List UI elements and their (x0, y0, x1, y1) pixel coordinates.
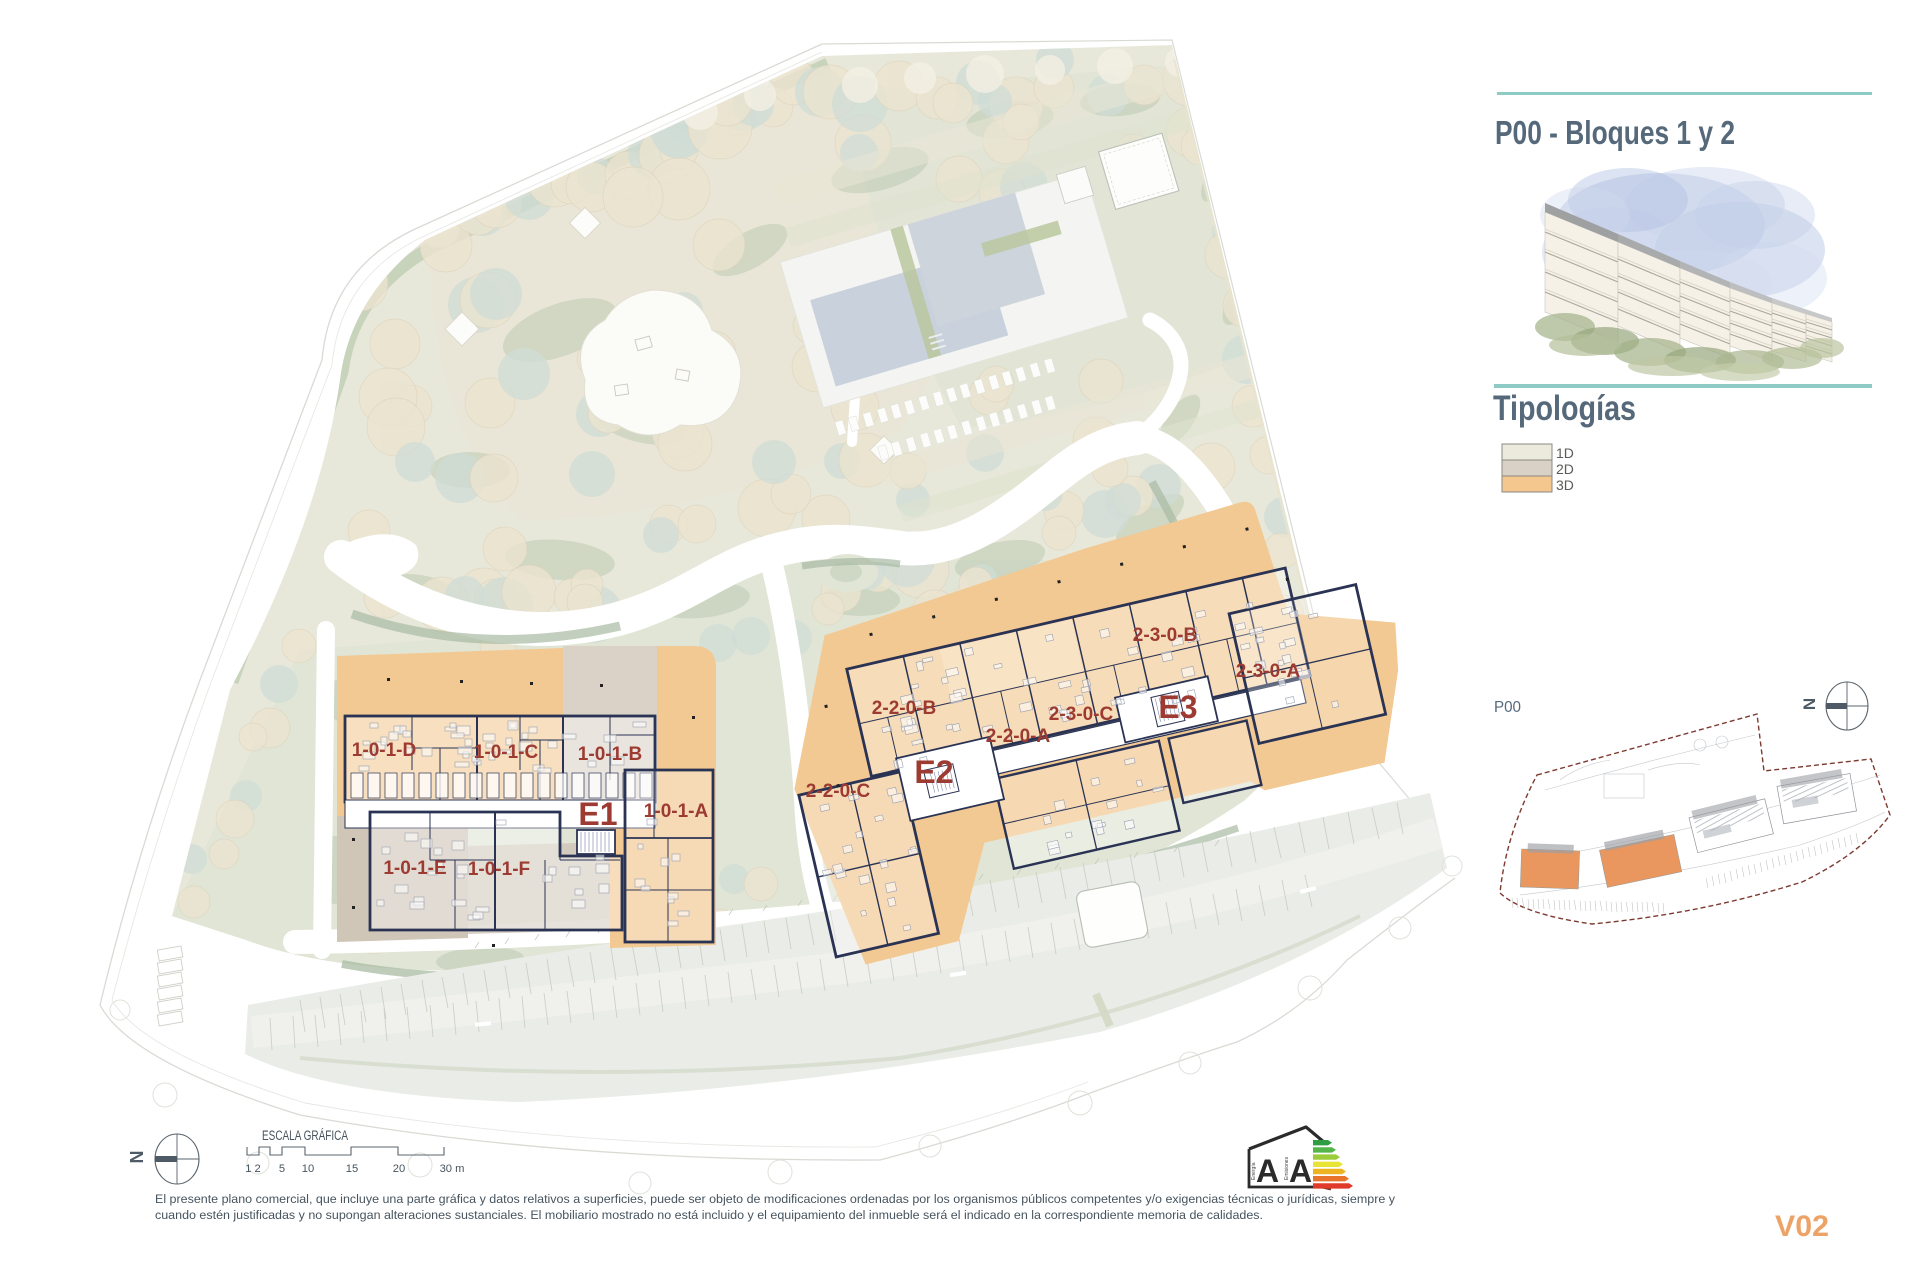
svg-text:5: 5 (279, 1163, 285, 1175)
svg-text:Tipologías: Tipologías (1493, 389, 1636, 428)
svg-text:N: N (1800, 698, 1819, 710)
svg-text:V02: V02 (1775, 1210, 1829, 1243)
svg-text:1-0-1-E: 1-0-1-E (383, 858, 446, 879)
svg-text:1D: 1D (1556, 445, 1574, 461)
svg-text:30 m: 30 m (440, 1163, 465, 1175)
svg-text:A: A (1289, 1153, 1312, 1189)
svg-text:P00: P00 (1494, 699, 1521, 716)
svg-text:P00 - Bloques 1 y 2: P00 - Bloques 1 y 2 (1495, 114, 1735, 151)
svg-text:20: 20 (393, 1163, 405, 1175)
svg-text:E2: E2 (914, 754, 953, 790)
svg-text:1-0-1-C: 1-0-1-C (474, 742, 539, 763)
svg-text:E1: E1 (578, 796, 617, 832)
svg-text:10: 10 (302, 1163, 314, 1175)
svg-text:cuando estén justificadas y no: cuando estén justificadas y no supongan … (155, 1208, 1263, 1222)
svg-text:15: 15 (346, 1163, 358, 1175)
svg-text:E3: E3 (1158, 689, 1197, 725)
svg-text:1 2: 1 2 (245, 1163, 261, 1175)
svg-text:2-2-0-B: 2-2-0-B (872, 698, 936, 719)
svg-text:2-2-0-C: 2-2-0-C (806, 781, 871, 802)
svg-text:2-3-0-C: 2-3-0-C (1049, 704, 1114, 725)
svg-text:El presente plano comercial, q: El presente plano comercial, que incluye… (155, 1192, 1396, 1206)
svg-text:1-0-1-F: 1-0-1-F (468, 859, 530, 880)
svg-text:2-3-0-A: 2-3-0-A (1236, 661, 1301, 682)
svg-text:1-0-1-D: 1-0-1-D (352, 740, 416, 761)
svg-text:3D: 3D (1556, 477, 1574, 493)
svg-text:N: N (127, 1151, 147, 1164)
svg-text:2-3-0-B: 2-3-0-B (1133, 625, 1197, 646)
svg-text:ESCALA GRÁFICA: ESCALA GRÁFICA (262, 1128, 348, 1143)
svg-text:1-0-1-B: 1-0-1-B (578, 744, 642, 765)
svg-text:Emisiones: Emisiones (1284, 1156, 1290, 1180)
svg-text:2-2-0-A: 2-2-0-A (986, 726, 1051, 747)
svg-text:Energía: Energía (1251, 1162, 1257, 1180)
svg-text:A: A (1256, 1153, 1279, 1189)
svg-text:1-0-1-A: 1-0-1-A (644, 801, 709, 822)
svg-text:2D: 2D (1556, 461, 1574, 477)
